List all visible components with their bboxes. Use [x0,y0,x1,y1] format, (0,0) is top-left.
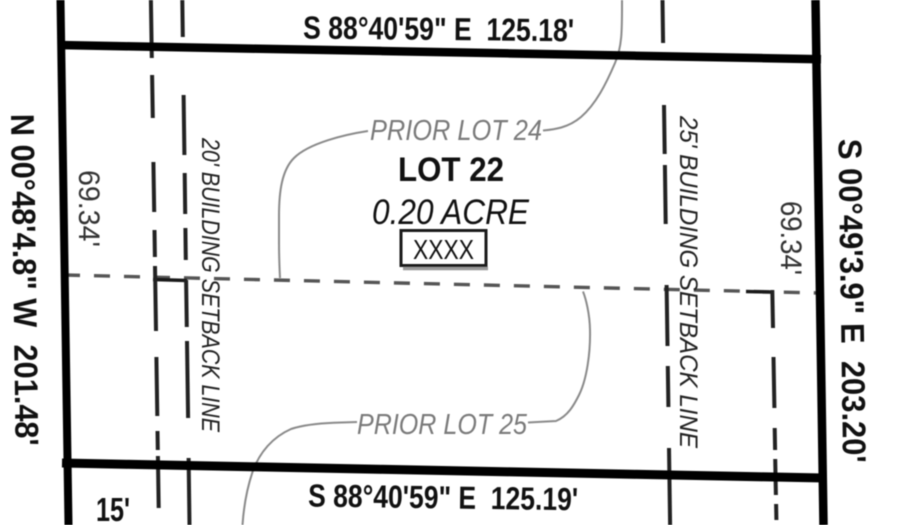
svg-text:S 88°40'59" E 125.19': S 88°40'59" E 125.19' [308,478,578,518]
svg-text:69.34': 69.34' [72,170,105,247]
svg-text:N 00°48'4.8" W 201.48': N 00°48'4.8" W 201.48' [4,114,46,446]
svg-text:PRIOR LOT 24: PRIOR LOT 24 [370,115,542,147]
svg-text:69.34': 69.34' [774,201,807,275]
svg-text:0.20 ACRE: 0.20 ACRE [372,193,530,232]
svg-text:XXXX: XXXX [413,234,474,265]
svg-text:15': 15' [96,491,130,525]
svg-text:S 00°49'3.9" E 203.20': S 00°49'3.9" E 203.20' [832,139,874,463]
svg-text:LOT 22: LOT 22 [398,151,504,189]
svg-text:PRIOR LOT 25: PRIOR LOT 25 [357,409,528,441]
svg-text:20' BUILDING SETBACK LINE: 20' BUILDING SETBACK LINE [196,137,224,432]
svg-text:25' BUILDING SETBACK LINE: 25' BUILDING SETBACK LINE [674,115,702,448]
svg-text:S 88°40'59" E 125.18': S 88°40'59" E 125.18' [303,10,574,49]
